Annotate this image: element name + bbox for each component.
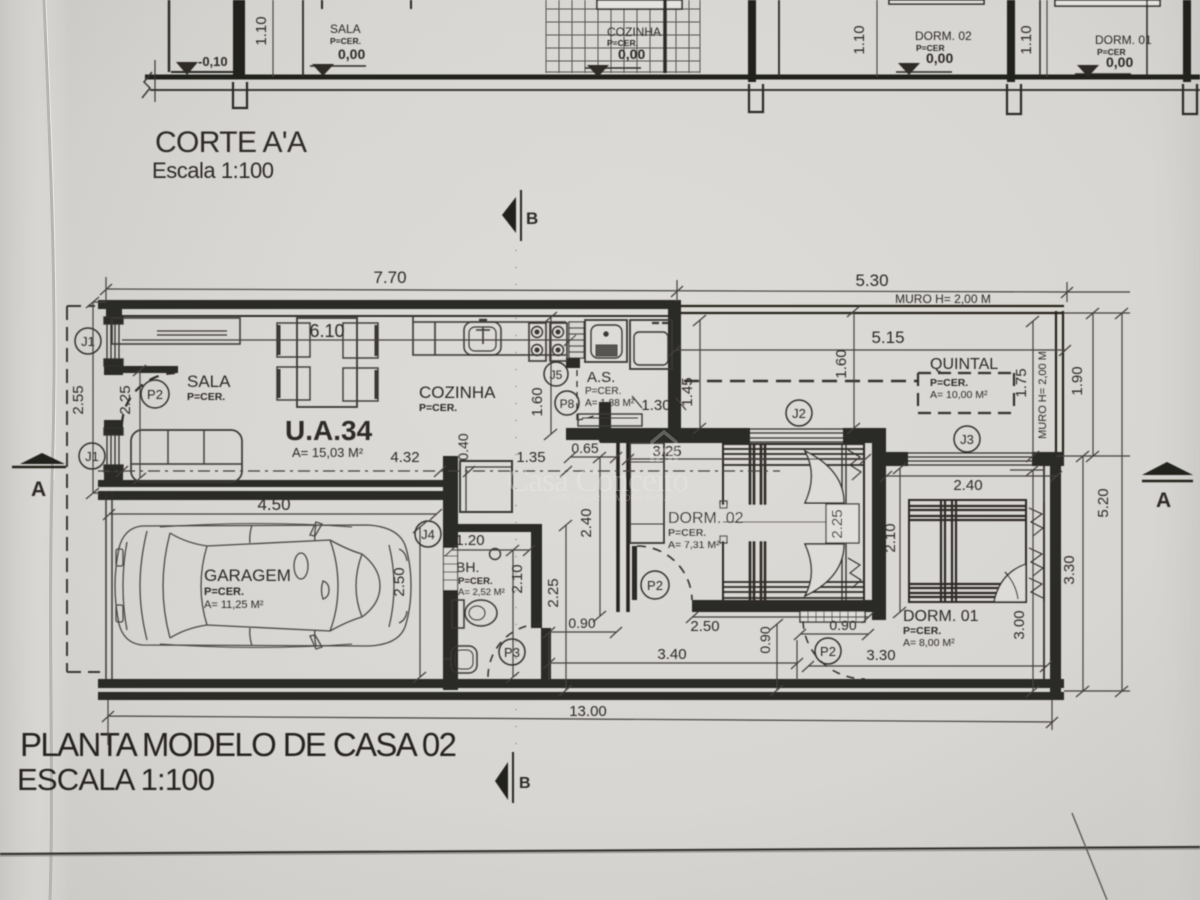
svg-text:7.70: 7.70 bbox=[373, 268, 406, 287]
svg-text:P2: P2 bbox=[647, 578, 663, 593]
svg-text:6.10: 6.10 bbox=[309, 321, 344, 341]
svg-text:1.10: 1.10 bbox=[851, 25, 868, 54]
svg-text:1.60: 1.60 bbox=[833, 349, 850, 378]
svg-text:P=CER.: P=CER. bbox=[419, 402, 457, 414]
svg-text:A= 1,88 M²: A= 1,88 M² bbox=[585, 398, 635, 409]
svg-text:B: B bbox=[519, 775, 531, 792]
svg-text:-0,10: -0,10 bbox=[198, 54, 228, 69]
svg-text:0.65: 0.65 bbox=[571, 440, 598, 456]
svg-text:COZINHA: COZINHA bbox=[419, 383, 496, 402]
svg-text:1.20: 1.20 bbox=[455, 532, 484, 549]
svg-text:0,00: 0,00 bbox=[926, 50, 953, 66]
svg-text:P=CER.: P=CER. bbox=[930, 377, 968, 389]
svg-text:0.90: 0.90 bbox=[568, 615, 595, 631]
svg-text:4.50: 4.50 bbox=[257, 495, 290, 514]
svg-text:Escala 1:100: Escala 1:100 bbox=[152, 158, 274, 183]
svg-text:P=CER.: P=CER. bbox=[204, 586, 244, 598]
svg-text:DORM. 02: DORM. 02 bbox=[668, 510, 744, 527]
svg-text:2.55: 2.55 bbox=[70, 385, 87, 414]
svg-text:0,00: 0,00 bbox=[1106, 54, 1133, 70]
svg-text:2.50: 2.50 bbox=[391, 567, 408, 596]
svg-text:J3: J3 bbox=[960, 432, 974, 447]
svg-text:A= 8,00 M²: A= 8,00 M² bbox=[903, 637, 955, 649]
svg-text:1.60: 1.60 bbox=[529, 387, 546, 416]
svg-text:P=CER.: P=CER. bbox=[668, 527, 706, 539]
svg-text:0,00: 0,00 bbox=[338, 46, 365, 62]
svg-text:3.40: 3.40 bbox=[657, 646, 686, 663]
svg-text:P2: P2 bbox=[147, 387, 163, 402]
svg-text:5.20: 5.20 bbox=[1095, 488, 1112, 517]
svg-text:PLANTA MODELO DE CASA 02: PLANTA MODELO DE CASA 02 bbox=[20, 726, 457, 763]
svg-text:J5: J5 bbox=[550, 368, 563, 382]
svg-text:1.45: 1.45 bbox=[679, 377, 696, 406]
svg-text:A= 10,00 M²: A= 10,00 M² bbox=[930, 389, 988, 401]
svg-text:P8: P8 bbox=[560, 397, 575, 411]
svg-text:5.15: 5.15 bbox=[871, 328, 904, 347]
svg-text:0.90: 0.90 bbox=[757, 626, 773, 653]
svg-text:P=CER.: P=CER. bbox=[330, 36, 361, 46]
svg-text:P=CER.: P=CER. bbox=[458, 576, 493, 587]
svg-text:1.75: 1.75 bbox=[1013, 368, 1030, 397]
svg-text:J1: J1 bbox=[85, 449, 99, 464]
svg-text:SALA: SALA bbox=[187, 372, 231, 391]
svg-text:1.30: 1.30 bbox=[641, 397, 670, 414]
svg-text:P2: P2 bbox=[820, 644, 836, 659]
svg-text:QUINTAL: QUINTAL bbox=[930, 356, 998, 373]
svg-text:2.40: 2.40 bbox=[953, 477, 982, 494]
svg-text:DORM. 01: DORM. 01 bbox=[903, 608, 979, 625]
svg-text:4.32: 4.32 bbox=[390, 449, 419, 466]
svg-text:A= 2,52 M²: A= 2,52 M² bbox=[458, 587, 505, 598]
svg-text:GARAGEM: GARAGEM bbox=[204, 566, 291, 585]
svg-text:P=CER.: P=CER. bbox=[187, 391, 225, 403]
svg-text:3.30: 3.30 bbox=[1061, 555, 1078, 584]
svg-text:A: A bbox=[1156, 489, 1171, 512]
svg-text:J2: J2 bbox=[792, 406, 806, 421]
svg-text:A= 7,31 M²: A= 7,31 M² bbox=[668, 539, 720, 551]
svg-text:MURO H= 2,00 M: MURO H= 2,00 M bbox=[895, 292, 991, 306]
svg-text:2.25: 2.25 bbox=[545, 578, 562, 607]
svg-text:DORM. 02: DORM. 02 bbox=[915, 29, 972, 43]
svg-text:2.10: 2.10 bbox=[509, 564, 526, 593]
svg-text:MURO H= 2,00 M: MURO H= 2,00 M bbox=[1037, 351, 1049, 439]
svg-text:U.A.34: U.A.34 bbox=[285, 415, 373, 446]
svg-text:13.00: 13.00 bbox=[569, 703, 607, 720]
svg-text:3.30: 3.30 bbox=[866, 647, 895, 664]
svg-text:1.10: 1.10 bbox=[253, 16, 270, 45]
svg-text:B: B bbox=[526, 209, 538, 228]
svg-text:2.25: 2.25 bbox=[117, 385, 134, 414]
svg-text:DORM. 01: DORM. 01 bbox=[1095, 33, 1152, 47]
svg-text:5.30: 5.30 bbox=[855, 271, 888, 290]
svg-text:COZINHA: COZINHA bbox=[607, 25, 661, 39]
svg-text:0.40: 0.40 bbox=[455, 433, 471, 460]
svg-text:CORTE A'A: CORTE A'A bbox=[155, 126, 307, 159]
svg-text:3.00: 3.00 bbox=[1011, 610, 1028, 639]
svg-text:0,00: 0,00 bbox=[618, 46, 645, 62]
svg-text:P3: P3 bbox=[504, 645, 520, 660]
svg-text:2.25: 2.25 bbox=[829, 509, 846, 538]
svg-text:J1: J1 bbox=[81, 334, 95, 349]
svg-text:2.40: 2.40 bbox=[578, 508, 595, 537]
svg-text:A: A bbox=[31, 478, 46, 501]
svg-text:1.10: 1.10 bbox=[1018, 25, 1035, 54]
svg-text:ASSESSORIA IMOBILIARIA: ASSESSORIA IMOBILIARIA bbox=[548, 493, 673, 504]
svg-text:P=CER.: P=CER. bbox=[903, 625, 941, 637]
svg-text:P=CER.: P=CER. bbox=[585, 386, 621, 397]
svg-text:J4: J4 bbox=[421, 527, 435, 542]
svg-text:BH.: BH. bbox=[456, 559, 479, 575]
svg-text:0.90: 0.90 bbox=[829, 617, 856, 633]
svg-text:SALA: SALA bbox=[330, 22, 361, 36]
svg-text:1.90: 1.90 bbox=[1069, 366, 1086, 395]
svg-text:A= 11,25 M²: A= 11,25 M² bbox=[204, 599, 264, 611]
svg-text:2.50: 2.50 bbox=[690, 618, 719, 635]
svg-text:ESCALA 1:100: ESCALA 1:100 bbox=[17, 762, 215, 797]
svg-text:2.10: 2.10 bbox=[882, 523, 899, 552]
svg-text:A.S.: A.S. bbox=[587, 369, 615, 386]
svg-text:A= 15,03 M²: A= 15,03 M² bbox=[292, 445, 364, 460]
